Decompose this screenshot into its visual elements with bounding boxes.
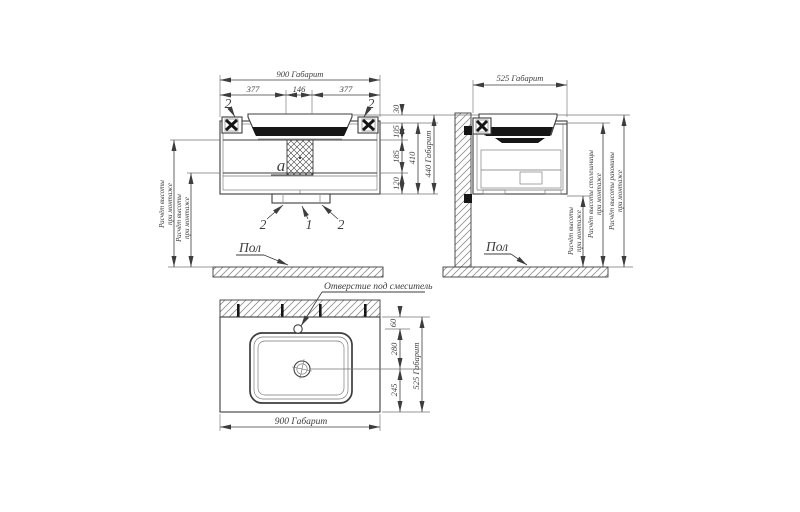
dim-60: 60 bbox=[388, 318, 398, 327]
basin-height-line1: Расчёт высоты раковины bbox=[608, 152, 616, 231]
faucet-note: Отверстие под смеситель bbox=[324, 281, 433, 292]
side-mount-height-line2: при монтаже bbox=[575, 210, 583, 252]
drawing-canvas: a 900 Габарит 377 146 377 bbox=[0, 0, 800, 512]
front-bracket-left bbox=[222, 117, 242, 133]
side-floor-hatch bbox=[443, 267, 608, 277]
wall-anchor-top bbox=[464, 126, 472, 135]
dim-overall-width: 900 Габарит bbox=[277, 69, 324, 79]
front-dim-mount: Расчёт высоты при монтаже Расчёт высоты … bbox=[158, 140, 220, 267]
front-floor-hatch bbox=[213, 267, 383, 277]
dim-30: 30 bbox=[391, 104, 401, 114]
floor-label: Пол bbox=[238, 240, 261, 255]
front-plinth bbox=[272, 194, 330, 203]
front-dim-width: 900 Габарит 377 146 377 bbox=[220, 69, 380, 117]
side-floor-label: Пол bbox=[485, 239, 508, 254]
mount-height-2-line1: Расчёт высоты bbox=[175, 194, 183, 243]
callout-top-right: 2 bbox=[368, 96, 375, 111]
dim-245: 245 bbox=[389, 384, 399, 397]
front-floor-label: Пол bbox=[236, 240, 288, 265]
dim-seg-right: 377 bbox=[339, 84, 354, 94]
side-mount-height-line1: Расчёт высоты bbox=[567, 207, 575, 256]
callout-bottom-right: 2 bbox=[338, 217, 345, 232]
callout-bottom-center: 1 bbox=[306, 217, 313, 232]
side-drawer bbox=[481, 150, 561, 188]
callout-top-left: 2 bbox=[225, 96, 232, 111]
side-floor-label: Пол bbox=[484, 239, 527, 265]
side-dim-depth: 525 Габарит bbox=[473, 73, 567, 117]
side-wall-hatch bbox=[455, 113, 471, 267]
dim-410: 410 bbox=[407, 151, 417, 165]
wall-anchor-bottom bbox=[464, 194, 472, 203]
plan-dim-overall-depth: 525 Габарит bbox=[411, 343, 421, 390]
mount-height-2-line2: при монтаже bbox=[183, 197, 191, 239]
dim-seg-left: 377 bbox=[246, 84, 261, 94]
dim-185: 185 bbox=[391, 150, 401, 163]
side-view: 525 Габарит Расчёт высоты при монтаже Ра… bbox=[443, 73, 633, 277]
plan-wall-hatch bbox=[220, 300, 380, 317]
panel-label: a bbox=[277, 156, 286, 175]
counter-height-line1: Расчёт высоты столешницы bbox=[587, 150, 595, 239]
side-dim-mount: Расчёт высоты при монтаже Расчёт высоты … bbox=[567, 115, 624, 267]
front-basin bbox=[248, 114, 352, 139]
plan-view: Отверстие под смеситель 60 280 245 525 Г… bbox=[220, 281, 433, 431]
front-view: a 900 Габарит 377 146 377 bbox=[158, 69, 630, 277]
mount-height-1-line1: Расчёт высоты bbox=[158, 180, 166, 229]
faucet-hole bbox=[294, 325, 302, 333]
plan-dim-width: 900 Габарит bbox=[220, 414, 380, 431]
dim-seg-center: 146 bbox=[293, 84, 307, 94]
technical-drawing: a 900 Габарит 377 146 377 bbox=[0, 0, 800, 512]
counter-height-line2: при монтаже bbox=[595, 173, 603, 215]
dim-overall-height: 440 Габарит bbox=[423, 131, 433, 178]
dim-120: 120 bbox=[391, 176, 401, 190]
callout-bottom-left: 2 bbox=[260, 217, 267, 232]
dim-105: 105 bbox=[391, 125, 401, 138]
plan-dim-depth: 60 280 245 525 Габарит bbox=[382, 307, 430, 412]
plan-dim-overall-width: 900 Габарит bbox=[275, 416, 328, 427]
dim-280: 280 bbox=[389, 342, 399, 356]
front-bracket-right bbox=[358, 117, 378, 133]
dim-overall-depth: 525 Габарит bbox=[497, 73, 544, 83]
mount-height-1-line2: при монтаже bbox=[166, 183, 174, 225]
basin-height-line2: при монтаже bbox=[616, 170, 624, 212]
